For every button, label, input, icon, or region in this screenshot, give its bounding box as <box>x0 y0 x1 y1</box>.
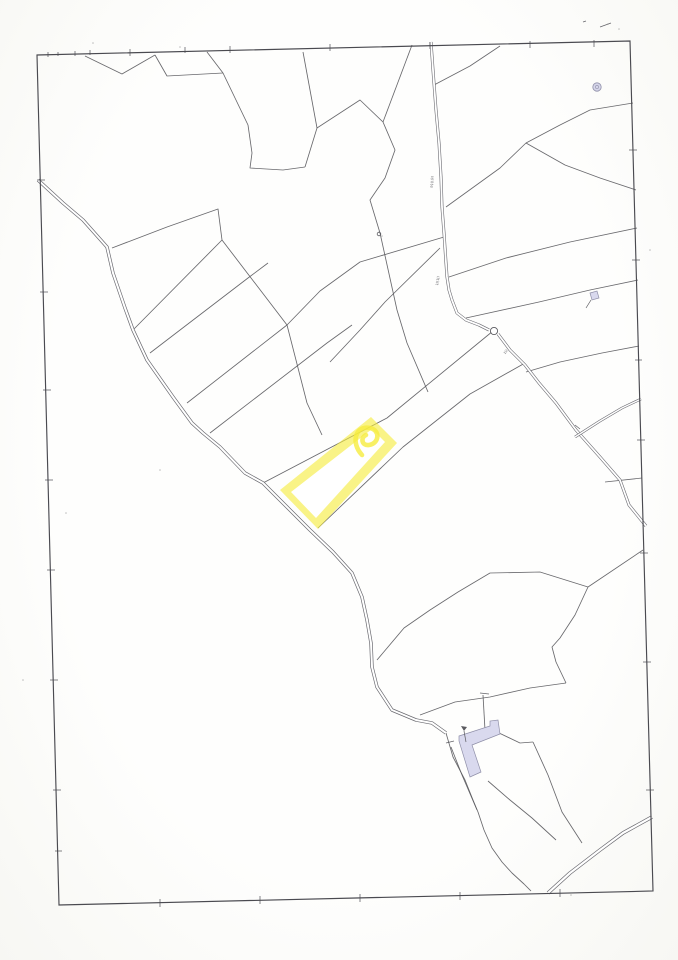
farm-east-dip <box>552 587 588 683</box>
scan-speck-7 <box>381 235 383 237</box>
parcel-line-top-zigzag <box>85 55 155 74</box>
road-label-north-lower: iltilt <box>435 276 441 286</box>
scan-speck-6 <box>570 894 572 896</box>
corner-road <box>548 817 652 893</box>
strip-line-5 <box>330 248 440 362</box>
coast-road-casing <box>38 180 446 733</box>
flag-symbol <box>461 726 467 731</box>
fence-line <box>483 695 485 730</box>
coast-path-south <box>446 733 531 891</box>
cross-line-1 <box>222 240 322 435</box>
building-tail-0 <box>586 300 591 308</box>
east-line-6 <box>605 478 642 482</box>
farm-top-line <box>420 683 566 715</box>
east-line-0 <box>434 46 500 85</box>
southeast-road <box>498 334 646 526</box>
parcel-line-road-side <box>112 209 222 248</box>
parcel-line-vee <box>317 100 383 128</box>
frame-tick-34 <box>446 741 454 743</box>
southeast-road-casing <box>498 334 646 526</box>
cadastral-map-canvas: itlilteiltiltitl <box>0 0 678 960</box>
east-line-2 <box>526 143 636 190</box>
scan-speck-2 <box>607 23 609 25</box>
farmyard-line-1 <box>497 732 533 743</box>
frame-tick-32 <box>600 23 611 27</box>
east-line-1 <box>446 103 633 207</box>
farm-north-zigzag <box>377 550 643 660</box>
east-line-5 <box>526 346 639 372</box>
scan-speck-9 <box>159 469 161 471</box>
pond-symbol <box>593 83 601 91</box>
small-building <box>590 291 599 300</box>
strip-line-1 <box>133 240 222 330</box>
road-label-north-upper: itlilte <box>429 176 435 189</box>
scan-speck-8 <box>649 249 651 251</box>
farmyard-line-2 <box>533 742 582 843</box>
scan-speck-4 <box>65 512 67 514</box>
scan-speck-1 <box>179 46 181 48</box>
east-line-3 <box>449 228 637 277</box>
strip-line-3 <box>187 237 444 403</box>
farmyard-line-3 <box>488 781 556 840</box>
road-junction-circle <box>490 327 497 334</box>
scan-speck-5 <box>22 679 24 681</box>
parcel-line-big-boundary <box>223 73 305 170</box>
frame-tick-31 <box>583 21 586 22</box>
east-line-4 <box>466 280 638 318</box>
scan-speck-3 <box>618 28 620 30</box>
corner-road-casing <box>548 817 652 893</box>
parcel-line-north <box>303 52 317 167</box>
scanned-map-page: itlilteiltiltitl <box>0 0 678 960</box>
parcel-line-top-stub <box>207 52 223 73</box>
north-road <box>431 42 489 330</box>
parcel-line-to-top <box>383 45 412 122</box>
scan-speck-0 <box>92 42 94 44</box>
coast-road <box>38 180 446 733</box>
cross-line-2 <box>370 122 428 392</box>
strip-line-4 <box>210 325 352 433</box>
north-road-casing <box>431 42 489 330</box>
frame-tick-33 <box>480 693 489 694</box>
parcel-line-top-quad <box>155 55 223 76</box>
